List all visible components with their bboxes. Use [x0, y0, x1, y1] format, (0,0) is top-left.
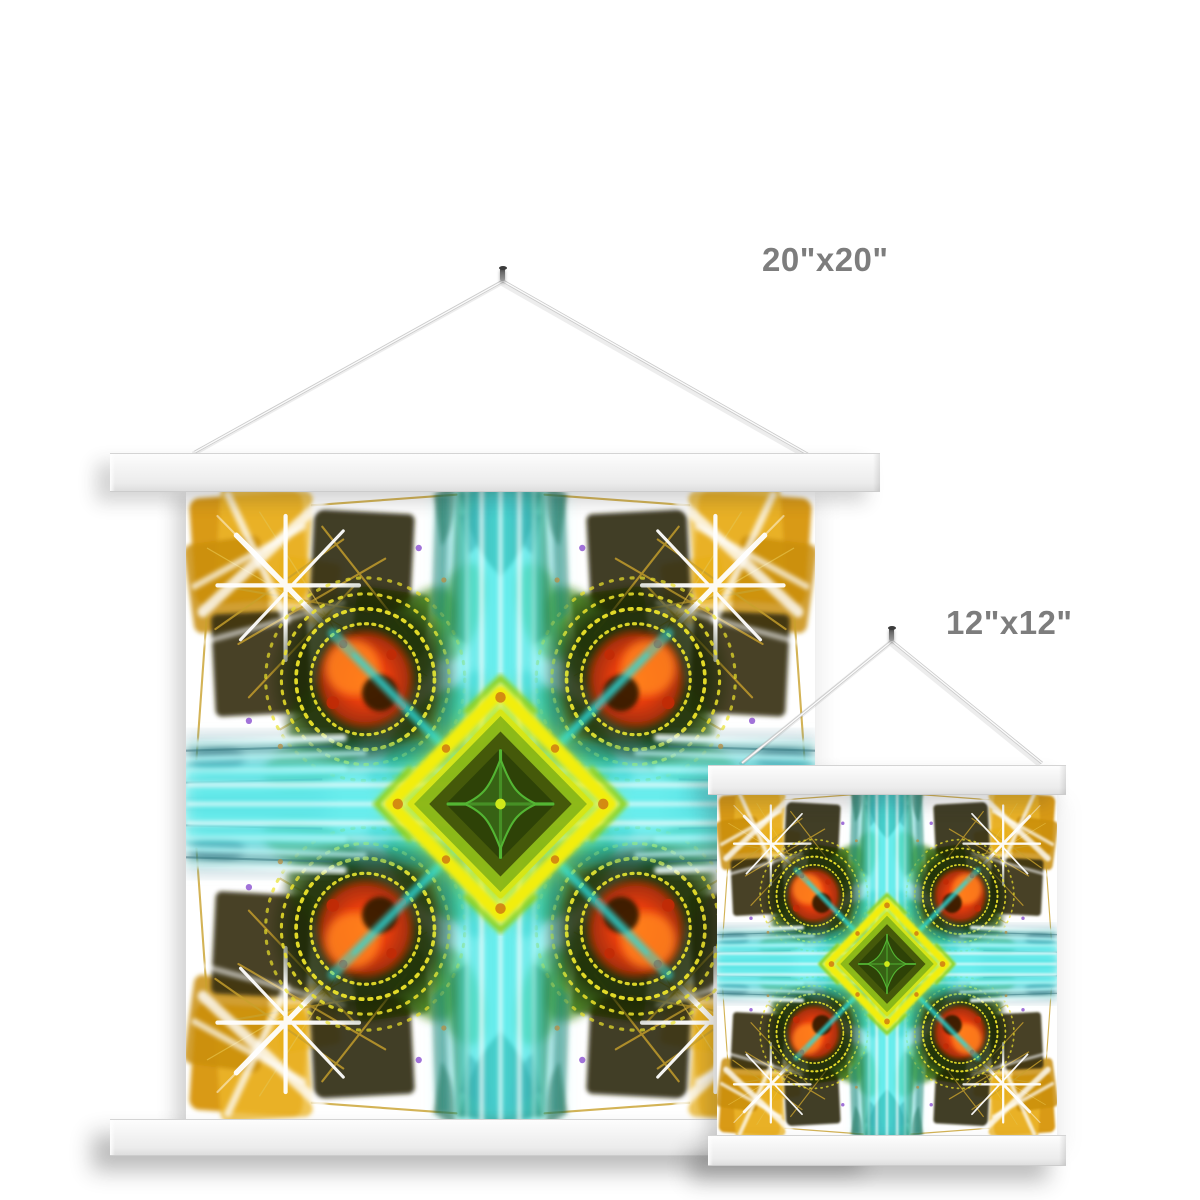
- product-mockup: 20"x20" 12"x12": [0, 0, 1200, 1200]
- print-paper-small: [717, 788, 1057, 1140]
- nail-icon-small: [889, 628, 894, 641]
- size-label-large: 20"x20": [762, 243, 889, 276]
- size-label-small: 12"x12": [946, 606, 1073, 639]
- artwork-image-small: [717, 788, 1057, 1140]
- bottom-hanger-bar-small: [708, 1135, 1066, 1166]
- print-12x12: [0, 0, 1200, 1200]
- top-hanger-bar-small: [708, 765, 1066, 795]
